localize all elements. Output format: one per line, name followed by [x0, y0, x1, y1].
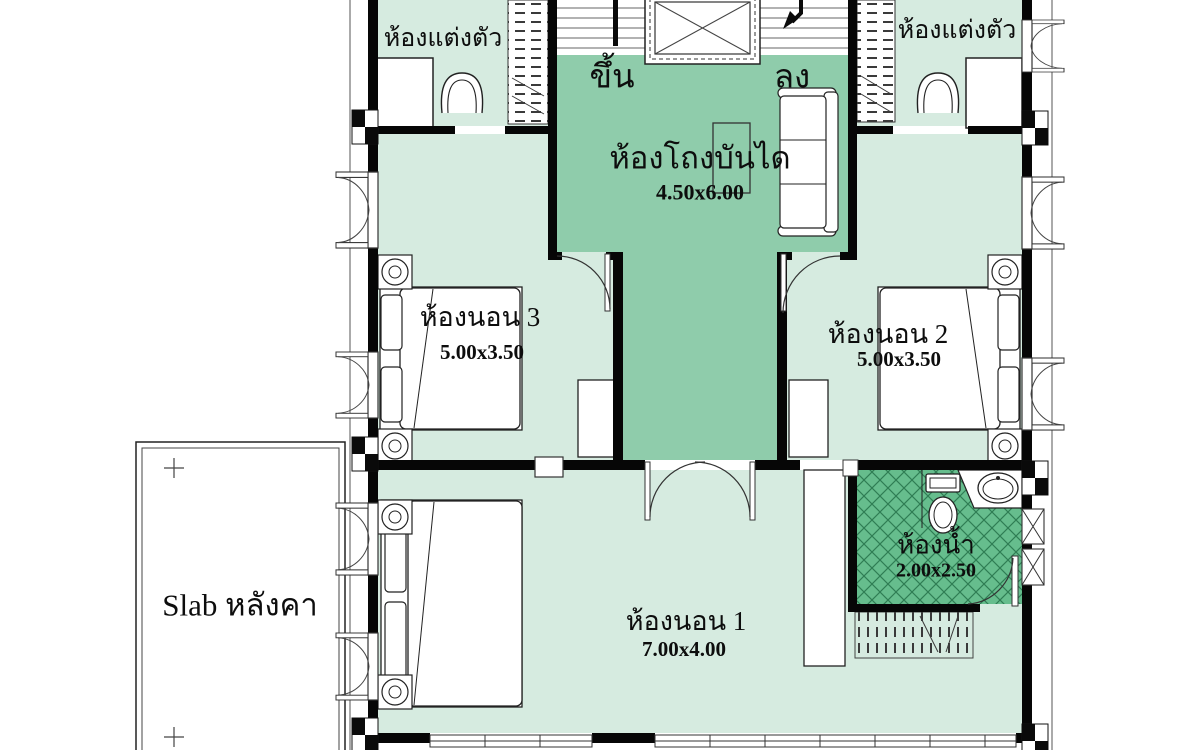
wall-hall-west: [548, 0, 557, 260]
chair-right: [917, 73, 958, 113]
wall-bathroom-west: [848, 460, 857, 612]
bedroom1-size: 7.00x4.00: [642, 638, 726, 660]
window-bedroom2-upper: [1022, 177, 1064, 249]
hall-corridor-floor: [623, 252, 777, 460]
closet-left: [508, 0, 548, 124]
down-arrow: [783, 0, 801, 29]
floor-plan-drawing: [0, 0, 1200, 750]
window-bedroom3-upper: [336, 172, 378, 248]
dressing-right-label: ห้องแต่งตัว: [898, 18, 1017, 44]
bedroom2-size: 5.00x3.50: [857, 348, 941, 370]
roof-slab-label: Slab หลังคา: [162, 590, 318, 623]
up-arrow-line: [613, 0, 618, 46]
staircase: [557, 0, 848, 64]
closet-bathroom-below: [855, 612, 973, 658]
faucet: [996, 476, 1000, 480]
window-dressing-right: [1022, 20, 1064, 72]
wall-joint: [843, 460, 858, 476]
window-bedroom3-lower: [336, 352, 378, 418]
window-bedroom2-lower: [1022, 358, 1064, 430]
bedroom2-label: ห้องนอน 2: [828, 320, 949, 348]
stair-hall-label: ห้องโถงบันได: [609, 143, 790, 176]
vanity-left: [377, 58, 433, 128]
closet-right: [857, 0, 895, 122]
bedroom3-size: 5.00x3.50: [440, 341, 524, 363]
stair-up-label: ขึ้น: [589, 61, 634, 96]
bottom-window-band: [430, 735, 1016, 747]
floor-plan: ห้องแต่งตัว ห้องแต่งตัว ขึ้น ลง ห้องโถงบ…: [0, 0, 1200, 750]
dresser-bedroom2: [789, 380, 828, 457]
wall-niche: [535, 457, 563, 477]
bedroom1-label: ห้องนอน 1: [626, 607, 747, 635]
wall-bathroom-south: [848, 604, 980, 612]
bathroom-label: ห้องน้ำ: [897, 531, 975, 558]
wall-corridor-west: [613, 252, 623, 460]
bathroom-size: 2.00x2.50: [896, 561, 976, 582]
chair-left: [441, 73, 482, 113]
dressing-left-label: ห้องแต่งตัว: [384, 26, 503, 52]
cabinet-bedroom1: [804, 470, 845, 666]
vanity-right: [966, 58, 1022, 128]
stair-down-label: ลง: [774, 61, 810, 96]
wall-hall-east: [848, 0, 857, 260]
dresser-bedroom3: [578, 380, 614, 457]
stair-void: [645, 0, 760, 64]
stair-hall-size: 4.50x6.00: [656, 180, 744, 203]
bedroom3-label: ห้องนอน 3: [420, 303, 541, 331]
